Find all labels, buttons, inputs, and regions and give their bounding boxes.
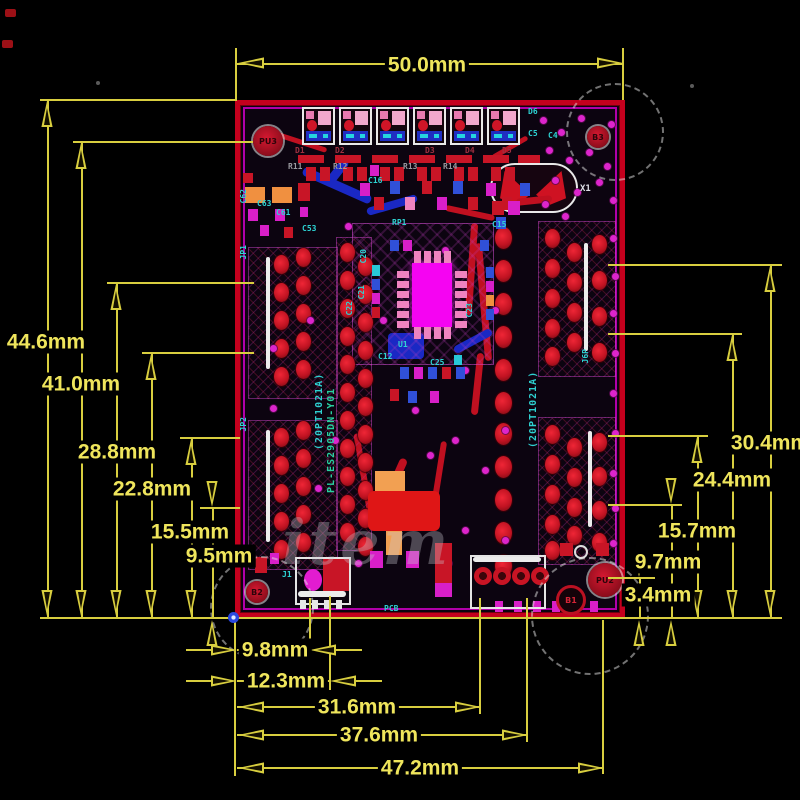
ref-label-u1: U1 — [398, 341, 408, 349]
transformer-block — [450, 107, 483, 145]
via — [307, 317, 314, 324]
arrowhead-down — [184, 590, 198, 616]
pad-oval — [340, 355, 355, 374]
pad-oval — [592, 271, 607, 290]
pad-oval — [358, 397, 373, 416]
pad-oval — [545, 425, 560, 444]
ref-label-c53: C53 — [302, 225, 316, 233]
pad-oval — [274, 283, 289, 302]
pad-oval — [567, 333, 582, 352]
dimension-line — [186, 649, 211, 651]
pad-oval — [545, 541, 560, 560]
arrowhead-down — [725, 590, 739, 616]
pad-oval — [296, 421, 311, 440]
pad-oval — [274, 255, 289, 274]
smd-pad — [414, 327, 421, 339]
smd-pad — [455, 281, 467, 288]
dim-label-bottom-1: 9.8mm — [239, 639, 312, 662]
connector-pad — [474, 567, 492, 585]
smd-pad — [435, 583, 452, 597]
dim-label-right-1: 30.4mm — [728, 432, 800, 455]
smd-pad — [491, 167, 501, 181]
main-ic-u1 — [412, 263, 452, 327]
pad — [429, 111, 442, 125]
smd-pad — [486, 281, 494, 292]
ref-label-r11: R11 — [288, 163, 302, 171]
arrowhead-up — [664, 620, 678, 646]
pad-oval — [545, 455, 560, 474]
pad — [343, 111, 351, 119]
ref-label-c63: C63 — [257, 200, 271, 208]
dim-label-right-5: 3.4mm — [622, 584, 695, 607]
smd-pad — [468, 197, 478, 210]
smd-pad — [437, 197, 447, 210]
smd-pad — [428, 367, 437, 379]
pad-oval — [545, 347, 560, 366]
extension-line — [526, 598, 528, 742]
dim-label-top: 50.0mm — [385, 54, 469, 77]
smd-pad — [456, 367, 465, 379]
smd-pad — [434, 327, 441, 339]
via — [546, 147, 553, 154]
arrowhead-left — [238, 728, 264, 742]
smd-pad — [372, 265, 380, 276]
extension-line — [602, 620, 604, 774]
via — [610, 470, 617, 477]
via — [566, 157, 573, 164]
dim-label-left-4: 22.8mm — [110, 478, 194, 501]
smd-pad — [397, 301, 409, 308]
pad — [503, 111, 516, 125]
via — [482, 467, 489, 474]
pad-oval — [358, 313, 373, 332]
pad-oval — [545, 289, 560, 308]
smd-pad — [430, 391, 439, 403]
pad-oval — [358, 369, 373, 388]
pad — [466, 111, 479, 125]
smd-pad — [518, 155, 540, 163]
silkscreen-text-part1: (20PT1021A) — [314, 335, 325, 450]
ref-label-c61: C61 — [276, 209, 290, 217]
pad-oval — [592, 501, 607, 520]
pad — [344, 120, 354, 131]
ref-label-c16: C16 — [368, 177, 382, 185]
via — [562, 213, 569, 220]
arrowhead-down — [109, 590, 123, 616]
smd-pad — [300, 207, 308, 217]
photo-artifact — [2, 40, 13, 48]
extension-line — [73, 141, 253, 143]
q1-pad — [375, 471, 405, 491]
pad-oval — [358, 453, 373, 472]
smd-pad — [505, 167, 515, 181]
via — [462, 527, 469, 534]
arrowhead-up — [144, 354, 158, 380]
pad-oval — [495, 392, 512, 414]
smd-pad — [372, 279, 380, 290]
silkscreen-text-part3: (20PT1021A) — [528, 333, 539, 448]
ref-label-d2: D2 — [335, 147, 345, 155]
mount-hole-label: PU3 — [259, 137, 277, 146]
extension-line — [608, 577, 655, 579]
connector-pad — [512, 567, 530, 585]
pad-oval — [567, 273, 582, 292]
pad — [454, 111, 462, 119]
dim-label-right-4: 9.7mm — [632, 551, 705, 574]
pad — [455, 120, 465, 131]
extension-line — [40, 99, 237, 101]
pad — [392, 111, 405, 125]
pad — [306, 111, 314, 119]
smd-pad — [480, 240, 489, 251]
pad-oval — [340, 271, 355, 290]
ref-label-c4: C4 — [548, 132, 558, 140]
transformer-block — [339, 107, 372, 145]
pad-oval — [592, 235, 607, 254]
extension-line — [142, 352, 254, 354]
arrowhead-left — [310, 643, 336, 657]
smd-pad — [357, 167, 367, 181]
smd-pad — [272, 187, 292, 203]
smd-pad — [408, 391, 417, 403]
dimension-line — [47, 100, 49, 618]
dimension-line — [356, 680, 382, 682]
origin-marker — [228, 612, 239, 623]
pad-oval — [495, 359, 512, 381]
smd-pad — [400, 367, 409, 379]
via — [610, 235, 617, 242]
via — [542, 201, 549, 208]
extension-line — [107, 282, 254, 284]
photo-artifact — [5, 9, 16, 17]
pad-oval — [592, 467, 607, 486]
smd-pad — [414, 251, 421, 263]
arrowhead-right — [455, 700, 481, 714]
dim-label-right-2: 24.4mm — [690, 469, 774, 492]
ref-label-c20: C20 — [360, 249, 368, 263]
pad — [355, 111, 368, 125]
extension-line — [608, 435, 708, 437]
pad — [454, 131, 479, 141]
pad-oval — [567, 468, 582, 487]
pad-oval — [296, 477, 311, 496]
extension-line — [180, 437, 240, 439]
smd-pad — [596, 543, 609, 556]
pad-oval — [340, 467, 355, 486]
pad-oval — [545, 515, 560, 534]
smd-pad — [424, 327, 431, 339]
pad — [318, 111, 331, 125]
via — [452, 437, 459, 444]
pad — [380, 111, 388, 119]
dimension-line — [336, 649, 362, 651]
via — [345, 223, 352, 230]
transformer-block — [302, 107, 335, 145]
silkscreen-bar — [266, 430, 270, 542]
arrowhead-down — [144, 590, 158, 616]
arrowhead-up — [184, 439, 198, 465]
smd-pad — [260, 225, 269, 236]
pad-oval — [274, 428, 289, 447]
pad — [380, 131, 405, 141]
smd-pad — [372, 293, 380, 304]
ref-label-d6: D6 — [528, 108, 538, 116]
extension-line — [235, 48, 237, 100]
smd-pad — [397, 291, 409, 298]
arrowhead-right — [597, 56, 623, 70]
dim-label-bottom-4: 37.6mm — [337, 724, 421, 747]
dim-label-bottom-5: 47.2mm — [378, 757, 462, 780]
via — [612, 350, 619, 357]
smd-pad — [454, 355, 462, 365]
silkscreen-bar — [473, 557, 541, 562]
ref-label-pcb: PCB — [384, 605, 398, 613]
extension-line — [200, 507, 240, 509]
pad-oval — [274, 456, 289, 475]
ref-label-c5: C5 — [528, 130, 538, 138]
arrowhead-right — [578, 761, 604, 775]
ref-label-r14: R14 — [443, 163, 457, 171]
smd-pad — [243, 173, 253, 183]
smd-pad — [508, 201, 520, 215]
via — [610, 310, 617, 317]
ref-label-c62: C62 — [240, 189, 248, 203]
smd-pad — [455, 271, 467, 278]
connector-pad — [493, 567, 511, 585]
ref-label-x1: X1 — [580, 185, 591, 194]
pad-oval — [545, 485, 560, 504]
ref-label-c15: C15 — [492, 221, 506, 229]
pad-oval — [567, 498, 582, 517]
pad — [306, 131, 331, 141]
via — [612, 273, 619, 280]
arrowhead-left — [238, 761, 264, 775]
smd-pad — [444, 327, 451, 339]
smd-pad — [284, 227, 293, 238]
pad-oval — [340, 383, 355, 402]
mount-hole-pu3: PU3 — [253, 126, 283, 156]
smd-pad — [320, 167, 330, 181]
arrowhead-left — [238, 700, 264, 714]
pad-oval — [340, 327, 355, 346]
smd-pad — [397, 321, 409, 328]
ref-label-jp2: JP2 — [240, 417, 248, 431]
pad-oval — [296, 276, 311, 295]
via — [380, 317, 387, 324]
via — [270, 345, 277, 352]
smd-pad — [403, 240, 412, 251]
via — [558, 129, 565, 136]
pad-oval — [592, 307, 607, 326]
pad-oval — [495, 227, 512, 249]
arrowhead-right — [502, 728, 528, 742]
pad-oval — [592, 343, 607, 362]
dim-label-left-5: 15.5mm — [148, 521, 232, 544]
smd-pad — [486, 309, 494, 320]
via — [502, 427, 509, 434]
pad — [343, 131, 368, 141]
silkscreen-bar — [266, 257, 270, 369]
pad-oval — [358, 341, 373, 360]
arrowhead-up — [74, 143, 88, 169]
arrowhead-down — [763, 590, 777, 616]
smd-pad — [397, 281, 409, 288]
photo-artifact — [690, 84, 694, 88]
arrowhead-left — [238, 56, 264, 70]
pad-oval — [340, 411, 355, 430]
extension-line — [329, 596, 331, 690]
pad-oval — [296, 248, 311, 267]
ref-label-d3: D3 — [425, 147, 435, 155]
pcb-dimension-drawing: PU3 B3 B2 B1 PU2 X1 D6 C5 C4 C15 C16 C53… — [0, 0, 800, 800]
pad — [418, 120, 428, 131]
transformer-block — [413, 107, 446, 145]
smd-pad — [486, 267, 494, 278]
dim-label-right-3: 15.7mm — [655, 520, 739, 543]
watermark: item — [282, 506, 451, 579]
pad-oval — [296, 332, 311, 351]
silkscreen-bar — [588, 431, 592, 527]
pad-oval — [274, 367, 289, 386]
smd-pad — [370, 165, 379, 176]
via — [612, 505, 619, 512]
via — [610, 390, 617, 397]
pad — [381, 120, 391, 131]
smd-pad — [414, 367, 423, 379]
arrowhead-up — [40, 101, 54, 127]
dim-label-left-2: 41.0mm — [39, 373, 123, 396]
arrowhead-left — [330, 674, 356, 688]
ref-label-c12: C12 — [378, 353, 392, 361]
ref-label-rp1: RP1 — [392, 219, 406, 227]
dim-label-bottom-2: 12.3mm — [244, 670, 328, 693]
dim-label-left-6: 9.5mm — [183, 545, 256, 568]
smd-pad — [560, 543, 573, 556]
via — [270, 405, 277, 412]
smd-pad — [486, 183, 496, 196]
pad-oval — [567, 303, 582, 322]
pad-oval — [495, 489, 512, 511]
smd-pad — [397, 311, 409, 318]
pad-oval — [495, 260, 512, 282]
via — [596, 179, 603, 186]
pad — [492, 120, 502, 131]
pad-oval — [296, 360, 311, 379]
smd-pad — [372, 155, 398, 163]
dimension-line — [186, 680, 211, 682]
smd-pad — [453, 181, 463, 194]
arrowhead-up — [690, 437, 704, 463]
pad-oval — [495, 456, 512, 478]
smd-pad — [405, 197, 415, 210]
smd-pad — [455, 321, 467, 328]
smd-pad — [431, 167, 441, 181]
via — [315, 485, 322, 492]
pad-oval — [592, 433, 607, 452]
extension-line — [608, 333, 742, 335]
pad-oval — [340, 243, 355, 262]
pad-oval — [274, 484, 289, 503]
arrowhead-down — [664, 478, 678, 504]
dim-label-bottom-3: 31.6mm — [315, 696, 399, 719]
ref-label-d1: D1 — [295, 147, 305, 155]
via — [540, 117, 547, 124]
pad — [491, 111, 499, 119]
ref-label-d5: D5 — [502, 147, 512, 155]
keepout-circle-bottom-right — [531, 557, 649, 675]
arrowhead-down — [74, 590, 88, 616]
smd-pad — [298, 183, 310, 201]
smd-pad — [417, 167, 427, 181]
smd-pad — [492, 201, 504, 215]
smd-pad — [468, 167, 478, 181]
ref-label-c22: C22 — [346, 301, 354, 315]
smd-pad — [520, 183, 530, 196]
via — [610, 540, 617, 547]
pad-oval — [545, 229, 560, 248]
smd-pad — [390, 181, 400, 194]
pad — [307, 120, 317, 131]
smd-pad — [390, 389, 399, 401]
extension-line — [479, 598, 481, 714]
pad-oval — [495, 326, 512, 348]
via — [502, 537, 509, 544]
photo-artifact — [96, 81, 100, 85]
smd-pad — [444, 251, 451, 263]
pad-oval — [274, 311, 289, 330]
pad — [417, 111, 425, 119]
pad-oval — [340, 439, 355, 458]
pad-oval — [567, 243, 582, 262]
ref-label-r12: R12 — [333, 163, 347, 171]
via — [610, 197, 617, 204]
pad-oval — [296, 449, 311, 468]
ref-label-d4: D4 — [465, 147, 475, 155]
smd-pad — [390, 240, 399, 251]
pad-oval — [358, 425, 373, 444]
keepout-circle-top-right — [566, 83, 664, 181]
arrowhead-down — [205, 481, 219, 507]
via — [412, 407, 419, 414]
via — [552, 177, 559, 184]
arrowhead-up — [725, 335, 739, 361]
dim-label-left-1: 44.6mm — [4, 331, 88, 354]
ref-label-j6p: J6P — [582, 349, 590, 363]
arrowhead-up — [763, 266, 777, 292]
extension-line — [608, 264, 782, 266]
smd-pad — [374, 197, 384, 210]
pad-oval — [545, 319, 560, 338]
pad-oval — [567, 438, 582, 457]
pad — [417, 131, 442, 141]
smd-pad — [486, 295, 494, 306]
ref-label-jp1: JP1 — [240, 245, 248, 259]
smd-pad — [455, 291, 467, 298]
smd-pad — [422, 181, 432, 194]
pad — [491, 131, 516, 141]
silkscreen-text-part2: PL-ES2905DN-Y01 — [326, 343, 337, 493]
smd-pad — [397, 271, 409, 278]
extension-line — [622, 48, 624, 100]
extension-line — [234, 620, 236, 776]
transformer-block — [376, 107, 409, 145]
silkscreen-bar — [584, 243, 588, 351]
ref-label-c23: C23 — [466, 303, 474, 317]
smd-pad — [248, 209, 258, 221]
pad-oval — [545, 259, 560, 278]
smd-pad — [424, 251, 431, 263]
smd-pad — [442, 367, 451, 379]
